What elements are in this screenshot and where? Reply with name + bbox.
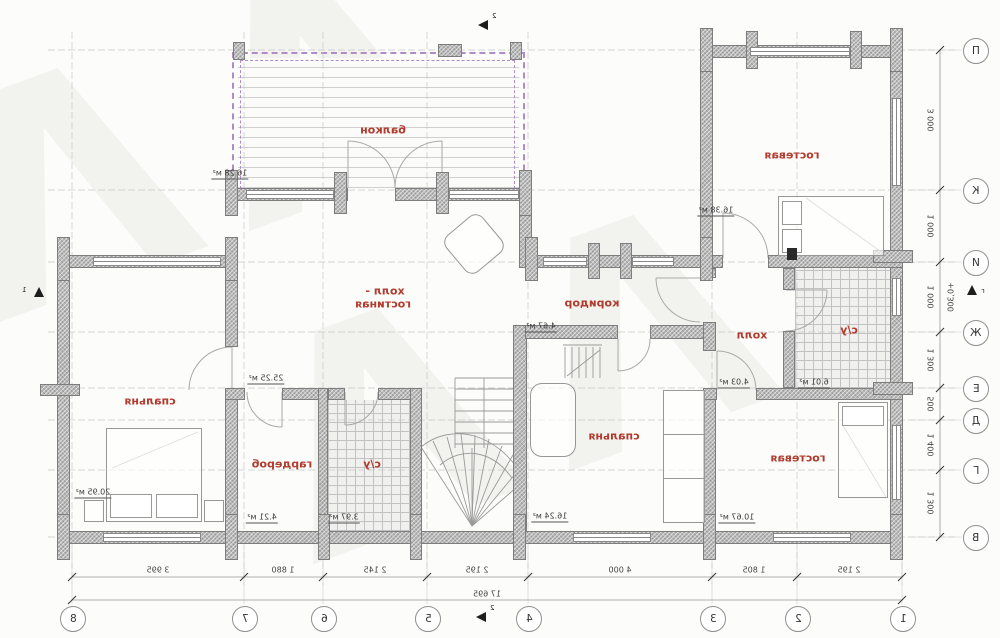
log-cap: [57, 237, 70, 281]
log-cap: [700, 28, 713, 72]
wall: [783, 331, 795, 388]
armchair: [530, 383, 576, 457]
wall: [395, 188, 442, 201]
log-cap: [890, 514, 903, 560]
window: [892, 98, 901, 186]
axis-bubble-right: П: [963, 38, 989, 64]
dim-right: 500: [927, 396, 936, 411]
axis-bubble-right: В: [963, 525, 989, 551]
room-area-corridor: 4.67 м²: [525, 322, 557, 333]
dim-right: 1 300: [927, 492, 936, 515]
window: [892, 425, 901, 500]
level-mark-value: +0,300: [947, 282, 956, 312]
room-label-bath-right: с/у: [840, 324, 858, 337]
room-area-hall: 4.03 м²: [718, 378, 750, 389]
nightstand: [204, 500, 224, 522]
dim-bottom: 2 145: [364, 566, 387, 575]
dim-right: 1 000: [927, 215, 936, 238]
level-mark-letter: г: [981, 287, 985, 295]
log-cap: [519, 170, 532, 216]
log-cap: [57, 514, 70, 560]
axis-bubble-bottom: 7: [232, 606, 258, 632]
log-cap: [225, 514, 238, 560]
wardrobe-cabinet: [663, 390, 705, 523]
room-area-wardrobe: 4.21 м²: [246, 513, 278, 524]
dim-right: 1 000: [927, 286, 936, 309]
dim-bottom: 2 195: [466, 566, 489, 575]
dim-bottom: 2 195: [838, 566, 861, 575]
dim-bottom: 1 880: [272, 566, 295, 575]
log-cap: [436, 172, 449, 214]
log-cap: [225, 237, 238, 281]
level-mark-icon: [967, 285, 977, 295]
section-marker-icon: [476, 612, 486, 622]
window: [750, 47, 850, 56]
log-cap: [438, 44, 462, 57]
wall: [700, 45, 713, 268]
dim-bottom: 4 000: [609, 566, 632, 575]
wall: [513, 325, 527, 531]
wall: [703, 388, 717, 400]
room-label-hall: холл: [737, 329, 768, 342]
dim-right: 1 400: [927, 434, 936, 457]
pillow: [842, 406, 884, 426]
nightstand: [84, 500, 104, 522]
axis-bubble-right: Г: [963, 458, 989, 484]
window: [103, 533, 201, 542]
window: [449, 190, 519, 199]
room-area-bath-right: 6.01 м²: [798, 378, 830, 389]
wall: [410, 388, 422, 531]
room-label-hall-living-1: холл -: [365, 285, 404, 298]
window: [543, 257, 587, 266]
window: [892, 278, 901, 316]
log-cap: [850, 31, 862, 69]
window: [246, 190, 334, 199]
room-area-bedroom-center: 16.24 м²: [532, 512, 569, 523]
log-cap: [588, 243, 600, 279]
log-cap: [873, 382, 913, 395]
log-cap: [890, 28, 903, 72]
room-area-bath-small: 3.97 м²: [328, 513, 360, 524]
floor-plan: ΛΛ ΛΛ: [0, 0, 1000, 638]
room-label-guest-top: гостевая: [764, 149, 819, 162]
axis-bubble-bottom: 6: [311, 606, 337, 632]
room-label-corridor: коридор: [565, 297, 620, 310]
window: [93, 257, 221, 266]
dim-right: 1 300: [927, 349, 936, 372]
wall: [783, 268, 795, 290]
dim-bottom: 1 805: [743, 566, 766, 575]
axis-bubble-right: И: [963, 250, 989, 276]
pillow: [110, 494, 152, 518]
room-label-balcony: балкон: [360, 124, 406, 137]
log-cap: [700, 237, 713, 281]
wall: [225, 388, 245, 400]
room-label-guest-bottom: гостевая: [770, 452, 825, 465]
log-cap: [233, 42, 245, 60]
dim-bottom: 3 995: [147, 566, 170, 575]
dim-right: 3 000: [927, 109, 936, 132]
axis-bubble-right: Ж: [963, 320, 989, 346]
log-cap: [525, 237, 538, 281]
log-cap: [510, 42, 522, 60]
dim-bottom-total: 17 695: [473, 590, 501, 599]
room-area-bedroom-left: 20.95 м²: [75, 488, 112, 499]
window: [632, 257, 674, 266]
room-area-guest-top: 16.38 м²: [698, 206, 735, 217]
section-marker-label: 2: [492, 12, 496, 20]
axis-bubble-right: Е: [963, 376, 989, 402]
room-label-bath-small: с/у: [363, 458, 381, 471]
log-cap: [620, 243, 632, 279]
log-cap: [40, 384, 80, 396]
pillow: [156, 494, 198, 518]
room-area-guest-bottom: 10.67 м²: [719, 513, 756, 524]
axis-bubble-bottom: 3: [700, 606, 726, 632]
axis-bubble-bottom: 8: [60, 606, 86, 632]
bed-leg: [787, 248, 797, 260]
axis-bubble-bottom: 5: [415, 606, 441, 632]
axis-bubble-bottom: 1: [890, 606, 916, 632]
section-marker-icon: [478, 20, 488, 30]
axis-bubble-bottom: 2: [785, 606, 811, 632]
axis-bubble-bottom: 4: [516, 606, 542, 632]
wall: [703, 322, 716, 351]
section-marker-label: 2: [490, 604, 494, 612]
room-label-bedroom-left: спальня: [124, 395, 175, 408]
axis-bubble-right: Д: [963, 408, 989, 434]
room-label-hall-living-2: гостиная: [355, 298, 411, 311]
log-cap: [513, 514, 526, 560]
room-area-balcony: 16.28 м²: [212, 169, 249, 180]
log-cap: [410, 514, 422, 560]
window: [773, 533, 851, 542]
section-marker-icon: [34, 287, 44, 297]
wall: [225, 390, 238, 531]
room-area-hall-living: 25.25 м²: [248, 374, 285, 385]
wall: [57, 255, 70, 544]
log-cap: [334, 172, 347, 214]
window: [573, 533, 651, 542]
wall: [318, 388, 328, 531]
wall: [328, 388, 345, 400]
section-marker-label: 1: [22, 286, 26, 294]
room-label-wardrobe: гардероб: [252, 458, 313, 471]
pillow: [782, 201, 802, 225]
axis-bubble-right: К: [963, 178, 989, 204]
room-label-bedroom-center: спальня: [588, 430, 639, 443]
